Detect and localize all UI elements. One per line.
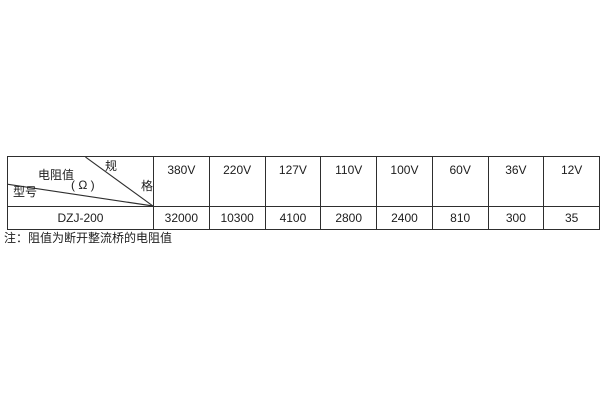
value-cell-220v: 10300 (209, 207, 265, 230)
value-cell-127v: 4100 (265, 207, 321, 230)
corner-label-spec-char2: 格 (141, 180, 153, 192)
corner-label-spec-char1: 规 (105, 160, 117, 172)
corner-header-cell: 规 格 电阻值 ( Ω ) 型号 (8, 157, 154, 207)
header-row: 规 格 电阻值 ( Ω ) 型号 380V 220V 127V 110V 100… (8, 157, 600, 207)
voltage-header-cell-36v: 36V (488, 157, 544, 207)
voltage-header-cell-220v: 220V (209, 157, 265, 207)
corner-label-resistance: 电阻值 (38, 169, 74, 181)
voltage-header-cell-60v: 60V (432, 157, 488, 207)
data-row: DZJ-200 32000 10300 4100 2800 2400 810 3… (8, 207, 600, 230)
value-cell-12v: 35 (544, 207, 600, 230)
voltage-header-cell-127v: 127V (265, 157, 321, 207)
model-cell: DZJ-200 (8, 207, 154, 230)
value-cell-36v: 300 (488, 207, 544, 230)
value-cell-380v: 32000 (153, 207, 209, 230)
resistance-spec-table: 规 格 电阻值 ( Ω ) 型号 380V 220V 127V 110V 100… (7, 156, 600, 230)
value-cell-100v: 2400 (377, 207, 433, 230)
value-cell-110v: 2800 (321, 207, 377, 230)
voltage-header-cell-12v: 12V (544, 157, 600, 207)
note-text: 注：阻值为断开整流桥的电阻值 (4, 229, 172, 246)
corner-label-unit: ( Ω ) (71, 179, 95, 191)
voltage-header-cell-110v: 110V (321, 157, 377, 207)
voltage-header-cell-380v: 380V (153, 157, 209, 207)
page-background: 规 格 电阻值 ( Ω ) 型号 380V 220V 127V 110V 100… (0, 0, 600, 400)
value-cell-60v: 810 (432, 207, 488, 230)
corner-label-model: 型号 (13, 186, 37, 198)
voltage-header-cell-100v: 100V (377, 157, 433, 207)
